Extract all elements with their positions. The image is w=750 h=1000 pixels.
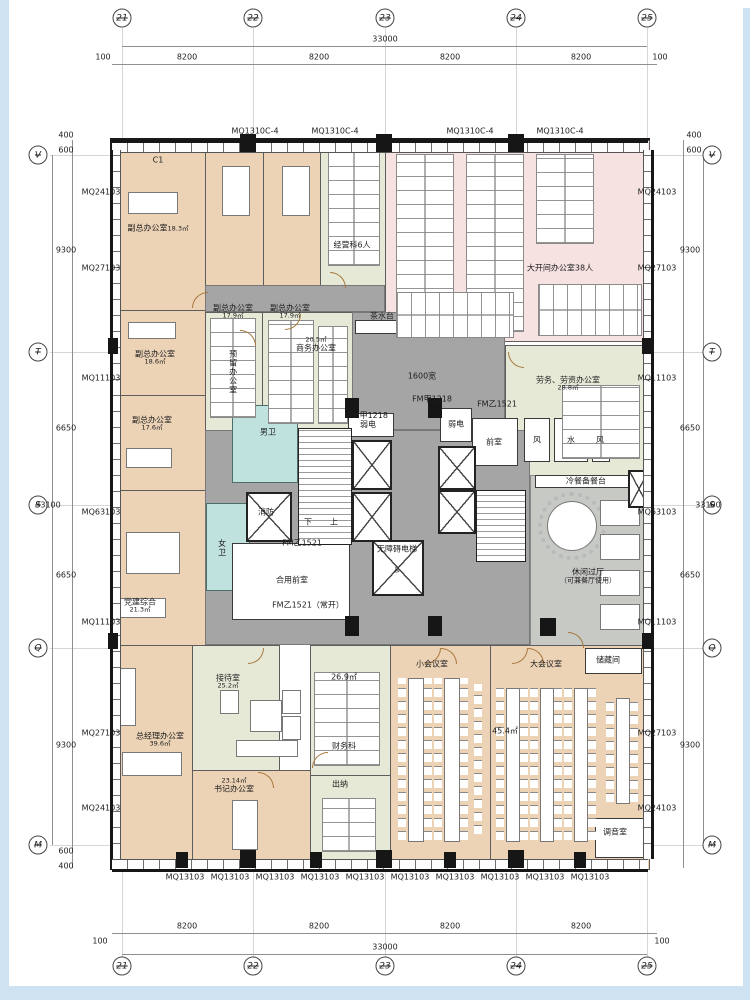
label-small-meeting: 小会议室 [416, 659, 448, 668]
dim-line [122, 954, 647, 955]
dim-edge-v: 600 [58, 145, 73, 154]
label-wind-1: 风 [533, 435, 541, 444]
dim-line [112, 933, 657, 934]
column [376, 850, 392, 868]
wall-label-bottom: MQ13103 [391, 872, 430, 881]
label-stair-up: 上 [330, 517, 338, 526]
label-tea-station: 茶水台 [370, 311, 394, 320]
chair-row [530, 688, 538, 840]
desk-bank [536, 154, 594, 244]
grid-bubble-23b: 23 [376, 957, 395, 976]
dim-total-bottom: 33000 [372, 942, 397, 951]
label-buffet-counter: 冷餐备餐台 [566, 476, 606, 485]
label-secretary: 23.14㎡书记办公室 [214, 778, 254, 795]
desk [282, 166, 310, 216]
label-finance: 财务科 [332, 741, 356, 750]
grid-bubble-21b: 21 [113, 957, 132, 976]
label-reserved: 预留办公室 [228, 350, 237, 395]
wall-label-top: MQ1310C-4 [311, 126, 358, 135]
room-deputy-office-5 [112, 395, 207, 492]
armchair [282, 690, 301, 714]
label-shared-anteroom: 合用前室 [276, 575, 308, 584]
elevator-4 [438, 490, 476, 534]
label-deputy4: 副总办公室18.6㎡ [135, 350, 175, 367]
elevator-3 [438, 446, 476, 490]
floor-plan: 21 22 23 24 25 21 22 23 24 25 V T S Q M … [0, 0, 750, 1000]
grid-bubble-Vr: V [703, 146, 722, 165]
dim-seg-v: 6650 [680, 570, 700, 579]
label-party: 党建综合21.3㎡ [124, 598, 156, 615]
label-fm-door-1: FM甲1218 [412, 394, 452, 403]
sofa [600, 604, 640, 630]
label-male-wc: 男卫 [260, 427, 276, 436]
desk [222, 166, 250, 216]
column [444, 852, 456, 868]
label-anteroom: 前室 [486, 437, 502, 446]
wall-label-top: MQ1310C-4 [536, 126, 583, 135]
wall-label-bottom: MQ13103 [166, 872, 205, 881]
dim-seg-v: 9300 [56, 245, 76, 254]
column [540, 618, 556, 636]
room-tuning [595, 818, 650, 858]
desk-bank [562, 385, 640, 459]
wall-label: MQ24103 [82, 803, 121, 812]
grid-bubble-25: 25 [638, 9, 657, 28]
meeting-table [574, 688, 588, 842]
wall-label: MQ11103 [82, 373, 121, 382]
grid-bubble-Qr: Q [703, 639, 722, 658]
meeting-table [444, 678, 460, 842]
dim-total-right: 33100 [695, 500, 720, 509]
label-deputy5: 副总办公室17.6㎡ [132, 416, 172, 433]
dim-edge: 100 [95, 52, 110, 61]
sofa [600, 534, 640, 560]
column [240, 134, 256, 152]
wall-label: MQ11103 [82, 617, 121, 626]
dim-line [112, 64, 657, 65]
dim-total-left: 33100 [35, 500, 60, 509]
desk [126, 448, 172, 468]
chair-row [424, 678, 432, 840]
wall-label: MQ11103 [638, 617, 677, 626]
column [345, 616, 359, 636]
sofa [128, 322, 176, 339]
label-large-meeting: 大会议室 [530, 659, 562, 668]
label-fm-door-3: FM乙1521 [282, 538, 322, 547]
dim-seg: 8200 [177, 921, 197, 930]
dim-seg-v: 6650 [680, 423, 700, 432]
desk [122, 752, 182, 776]
grid-bubble-23: 23 [376, 9, 395, 28]
wall-label: MQ27103 [82, 263, 121, 272]
desk [128, 192, 178, 214]
sofa [236, 740, 298, 757]
grid-bubble-Tr: T [703, 343, 722, 362]
grid-bubble-V: V [29, 146, 48, 165]
chair-row [496, 688, 504, 840]
label-cashier: 出纳 [332, 779, 348, 788]
label-water: 水 [567, 435, 575, 444]
dim-edge-v: 400 [58, 861, 73, 870]
column [240, 850, 256, 868]
dim-seg: 8200 [571, 921, 591, 930]
label-labor: 劳务、劳资办公室28.8㎡ [536, 376, 600, 393]
dim-seg-v: 9300 [680, 740, 700, 749]
dim-seg: 8200 [309, 921, 329, 930]
label-storage: 储藏间 [596, 655, 620, 664]
dim-seg-v: 6650 [56, 423, 76, 432]
grid-bubble-22: 22 [244, 9, 263, 28]
wall-label: MQ11103 [638, 373, 677, 382]
wall-label: MQ27103 [638, 263, 677, 272]
wall-label-bottom: MQ13103 [436, 872, 475, 881]
wall-label-bottom: MQ13103 [481, 872, 520, 881]
dim-edge-v: 400 [58, 130, 73, 139]
coffee-table [250, 700, 282, 732]
dim-edge-v: 600 [686, 145, 701, 154]
label-operations: 经营科6人 [333, 240, 370, 249]
wall-label-bottom: MQ13103 [256, 872, 295, 881]
label-accessible-elevator: 无障碍电梯 [377, 544, 417, 553]
label-tuning: 调音室 [603, 827, 627, 836]
grid-bubble-T: T [29, 343, 48, 362]
dim-edge: 100 [654, 936, 669, 945]
label-stair-down: 下 [304, 517, 312, 526]
label-open-office: 大开间办公室38人 [527, 263, 593, 272]
label-weak-current: 弱电 [448, 419, 464, 428]
meeting-table [408, 678, 424, 842]
chair-row [606, 698, 614, 802]
wall-label: MQ63103 [82, 507, 121, 516]
desk-bank [322, 798, 376, 852]
frame-bottom [0, 986, 750, 1000]
label-leisure: 休闲过厅（可兼餐厅使用） [560, 567, 616, 584]
column [574, 852, 586, 868]
column [642, 338, 652, 354]
column [508, 134, 524, 152]
wall-label: MQ27103 [82, 728, 121, 737]
column [508, 850, 524, 868]
grid-bubble-25b: 25 [638, 957, 657, 976]
window-strip-right [643, 150, 654, 859]
grid-bubble-24b: 24 [507, 957, 526, 976]
meeting-table [616, 698, 630, 804]
dim-line [122, 46, 647, 47]
wheelchair-icon: ♿ [393, 565, 400, 574]
grid-bubble-Q: Q [29, 639, 48, 658]
chair-row [564, 688, 572, 840]
column [176, 852, 188, 868]
column [428, 616, 442, 636]
label-fire-elevator: 消防 [258, 507, 274, 516]
stair-1 [298, 428, 352, 545]
conference-table [126, 532, 180, 574]
elevator-2 [352, 492, 392, 542]
wall-label: MQ63103 [638, 507, 677, 516]
grid-bubble-22b: 22 [244, 957, 263, 976]
label-deputy3: 副总办公室17.9㎡ [270, 304, 310, 321]
desk-bank [396, 292, 514, 338]
desk [232, 800, 258, 850]
fire-elevator [246, 492, 292, 542]
armchair [282, 716, 301, 740]
label-fm-door-2: FM乙1521 [477, 399, 517, 408]
window-strip-left [110, 150, 121, 859]
chair-row [398, 678, 406, 840]
armchair [220, 690, 239, 714]
dim-edge: 100 [652, 52, 667, 61]
frame-left [0, 0, 9, 1000]
dim-seg: 8200 [309, 52, 329, 61]
column [310, 852, 322, 868]
dim-edge: 100 [92, 936, 107, 945]
stair-2 [476, 490, 526, 562]
grid-bubble-M: M [29, 836, 48, 855]
dim-seg-v: 6650 [56, 570, 76, 579]
chair-row [520, 688, 528, 840]
wall-label: MQ24103 [638, 803, 677, 812]
elevator-1 [352, 440, 392, 490]
meeting-table [540, 688, 554, 842]
label-fm-door-4: FM乙1521（常开） [272, 600, 344, 609]
dim-total-top: 33000 [372, 34, 397, 43]
column [642, 633, 652, 649]
dim-edge-v: 600 [58, 846, 73, 855]
wall-label-top: MQ1310C-4 [446, 126, 493, 135]
wall-label-top: MQ1310C-4 [231, 126, 278, 135]
grid-bubble-21: 21 [113, 9, 132, 28]
dim-edge-v: 400 [686, 130, 701, 139]
wall-label-bottom: MQ13103 [346, 872, 385, 881]
meeting-table [506, 688, 520, 842]
chair-row [588, 688, 596, 840]
wall-label-bottom: MQ13103 [211, 872, 250, 881]
label-large-meeting-area: 45.4㎡ [492, 726, 518, 735]
label-deputy2: 副总办公室17.9㎡ [213, 304, 253, 321]
round-table [538, 492, 606, 560]
label-gm: 总经理办公室39.6㎡ [136, 732, 184, 749]
wall-label-bottom: MQ13103 [571, 872, 610, 881]
label-fm-weak: FM甲1218弱电 [348, 411, 388, 429]
dim-seg-v: 9300 [56, 740, 76, 749]
dim-seg: 8200 [177, 52, 197, 61]
column [376, 134, 392, 152]
wall-label-bottom: MQ13103 [301, 872, 340, 881]
desk-bank [538, 284, 642, 336]
chair-row [474, 684, 482, 834]
wall-label-bottom: MQ13103 [526, 872, 565, 881]
wall-label: MQ27103 [638, 728, 677, 737]
chair-row [554, 688, 562, 840]
dim-seg: 8200 [440, 52, 460, 61]
grid-bubble-Mr: M [703, 836, 722, 855]
label-finance-area: 26.9㎡ [331, 672, 357, 681]
label-reception: 接待室25.2㎡ [216, 674, 240, 691]
label-c1: C1 [153, 155, 164, 164]
label-female-wc: 女卫 [217, 539, 226, 557]
label-width-note: 1600宽 [408, 371, 436, 380]
dim-seg: 8200 [440, 921, 460, 930]
chair-row [460, 678, 468, 840]
column [108, 338, 118, 354]
label-business: 20.5㎡商务办公室 [296, 337, 336, 354]
frame-right [743, 8, 750, 1000]
chair-row [630, 698, 638, 802]
chair-row [434, 678, 442, 840]
grid-bubble-24: 24 [507, 9, 526, 28]
wall-label: MQ24103 [82, 187, 121, 196]
dim-seg: 8200 [571, 52, 591, 61]
label-deputy1: 副总办公室18.3㎡ [128, 223, 189, 232]
column [108, 633, 118, 649]
label-wind-2: 风 [596, 435, 604, 444]
wall-label: MQ24103 [638, 187, 677, 196]
dim-seg-v: 9300 [680, 245, 700, 254]
